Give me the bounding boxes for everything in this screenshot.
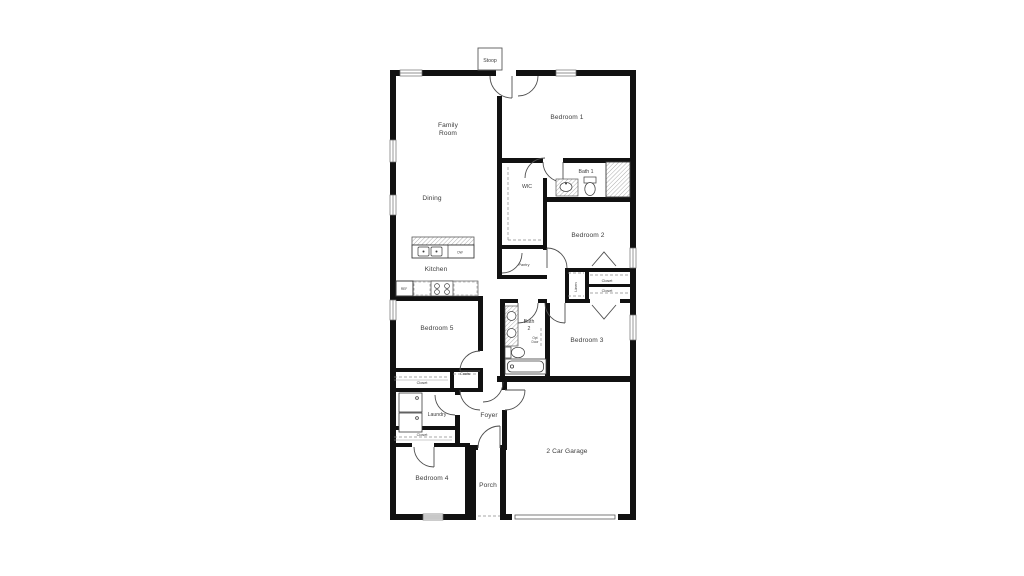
window-left-dining [390,195,396,215]
label-ref: REF [401,287,407,291]
window-bottom-bedroom4 [423,514,443,520]
window-right-bedroom2 [630,248,636,268]
label-porch: Porch [479,482,497,489]
floor-plan-canvas: Stoop Family Room Bedroom 1 WIC Bath 1 D… [0,0,1024,576]
label-bath2-1: Bath [524,319,535,325]
label-closet-bedroom3: Closet [602,289,614,293]
label-dw: DW [457,251,462,255]
bath2-toilet [505,347,525,358]
range [431,281,453,296]
floor-plan-page: Stoop Family Room Bedroom 1 WIC Bath 1 D… [0,0,1024,576]
label-dining: Dining [422,195,442,202]
label-bedroom4: Bedroom 4 [415,475,448,482]
washer [399,393,422,412]
bedroom1-door [518,76,538,96]
label-family-room-2: Room [439,130,457,137]
garage-door [512,513,618,521]
bedroom4-door [414,447,434,467]
bedroom2-door [547,248,567,268]
window-left-bedroom5 [390,300,396,320]
label-closet-bedroom5: Closet [417,381,429,385]
foyer-hall-door [483,382,503,402]
laundry-fixtures [399,393,422,432]
label-bedroom5: Bedroom 5 [420,325,453,332]
bath1-toilet [584,177,596,196]
front-door [478,426,500,448]
kitchen-bar-counter [412,237,474,245]
coats-door [460,390,480,410]
label-linen: Linen [574,282,578,291]
bath1-shower [606,162,630,197]
label-bedroom1: Bedroom 1 [550,114,583,121]
label-closet-bedroom2: Closet [602,279,614,283]
label-pantry: Pantry [519,263,530,267]
label-bath1: Bath 1 [579,169,594,175]
window-top-family [400,70,422,76]
label-closet-hall: Closet [417,433,429,437]
bath2-sink-1 [507,312,516,321]
closet-bedroom3-bifold [592,305,616,319]
label-family-room-1: Family [438,122,459,129]
label-laundry: Laundry [428,412,447,418]
label-foyer: Foyer [480,412,498,419]
window-left-family [390,140,396,162]
window-right-bedroom3 [630,315,636,340]
entry-door [490,76,512,98]
bath2-sink-2 [507,329,516,338]
window-top-bedroom1 [556,70,576,76]
closet-bedroom2-bifold [592,252,616,266]
label-garage: 2 Car Garage [546,448,587,455]
label-bedroom2: Bedroom 2 [571,232,604,239]
label-bedroom3: Bedroom 3 [570,337,603,344]
dryer [399,413,422,432]
label-coats: Coats [460,372,470,376]
label-opt-door-2: Door [532,340,540,344]
label-kitchen: Kitchen [425,266,448,273]
label-bath2-2: 2 [528,326,531,332]
bath1-fixtures [556,162,630,197]
garage-entry-door [505,390,525,410]
room-labels: Stoop Family Room Bedroom 1 WIC Bath 1 D… [401,58,614,489]
label-stoop: Stoop [483,58,497,64]
label-wic: WIC [522,184,532,190]
bath2-tub [505,359,546,374]
bath2-fixtures [505,306,546,374]
